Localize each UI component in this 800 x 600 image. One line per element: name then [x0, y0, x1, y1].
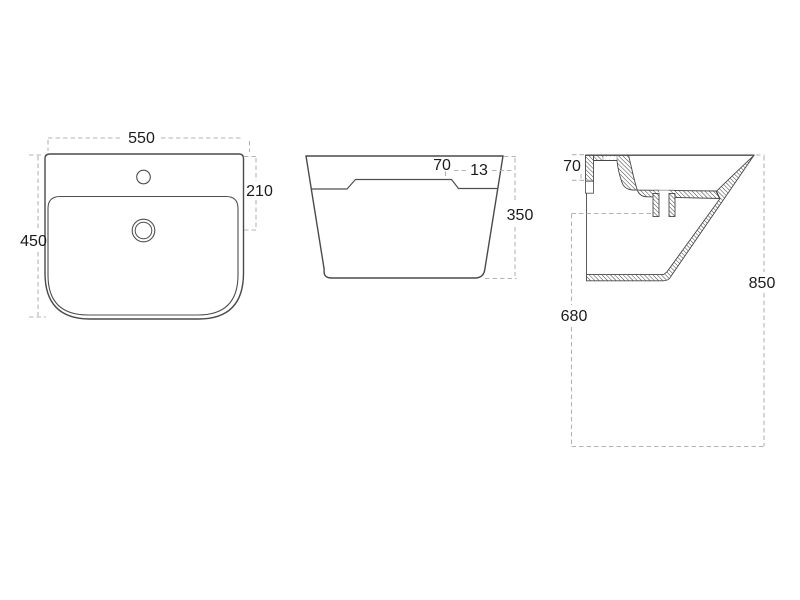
dim-label-top-width: 550 [128, 130, 155, 147]
dim-label-front-deck: 70 [433, 157, 451, 174]
dim-line-outlet-floor [572, 214, 654, 447]
drain-pipe-wall-left [653, 194, 659, 217]
dim-line-rim-floor [756, 155, 765, 446]
drain-opening [659, 189, 668, 217]
top-view: 550 450 210 [20, 130, 273, 319]
drawing-canvas: 550 450 210 70 13 350 [0, 0, 800, 600]
section-front-wall [587, 155, 755, 280]
bowl-inner-outline [48, 197, 238, 316]
dim-label-front-step: 13 [470, 162, 488, 179]
dim-label-front-height: 350 [507, 207, 534, 224]
faucet-hole [137, 170, 151, 184]
drain-pipe-wall-right [669, 194, 675, 217]
section-deck-and-bowl [594, 155, 720, 198]
dim-label-side-outlet: 680 [561, 308, 588, 325]
deck-faucet-gap [603, 156, 617, 160]
front-view: 70 13 350 [306, 156, 533, 279]
dim-label-top-drain-offset: 210 [246, 183, 273, 200]
side-section-view: 70 680 850 [561, 155, 776, 447]
front-deck-step-line [311, 180, 497, 190]
dim-label-side-mount: 70 [563, 158, 581, 175]
mounting-recess [586, 181, 594, 193]
technical-drawing: 550 450 210 70 13 350 [0, 0, 800, 600]
drain-hole-inner [135, 222, 152, 239]
basin-outer-outline [45, 154, 244, 319]
dim-label-side-rim: 850 [749, 275, 776, 292]
section-back-wall [586, 155, 594, 181]
dim-label-top-depth: 450 [20, 233, 47, 250]
